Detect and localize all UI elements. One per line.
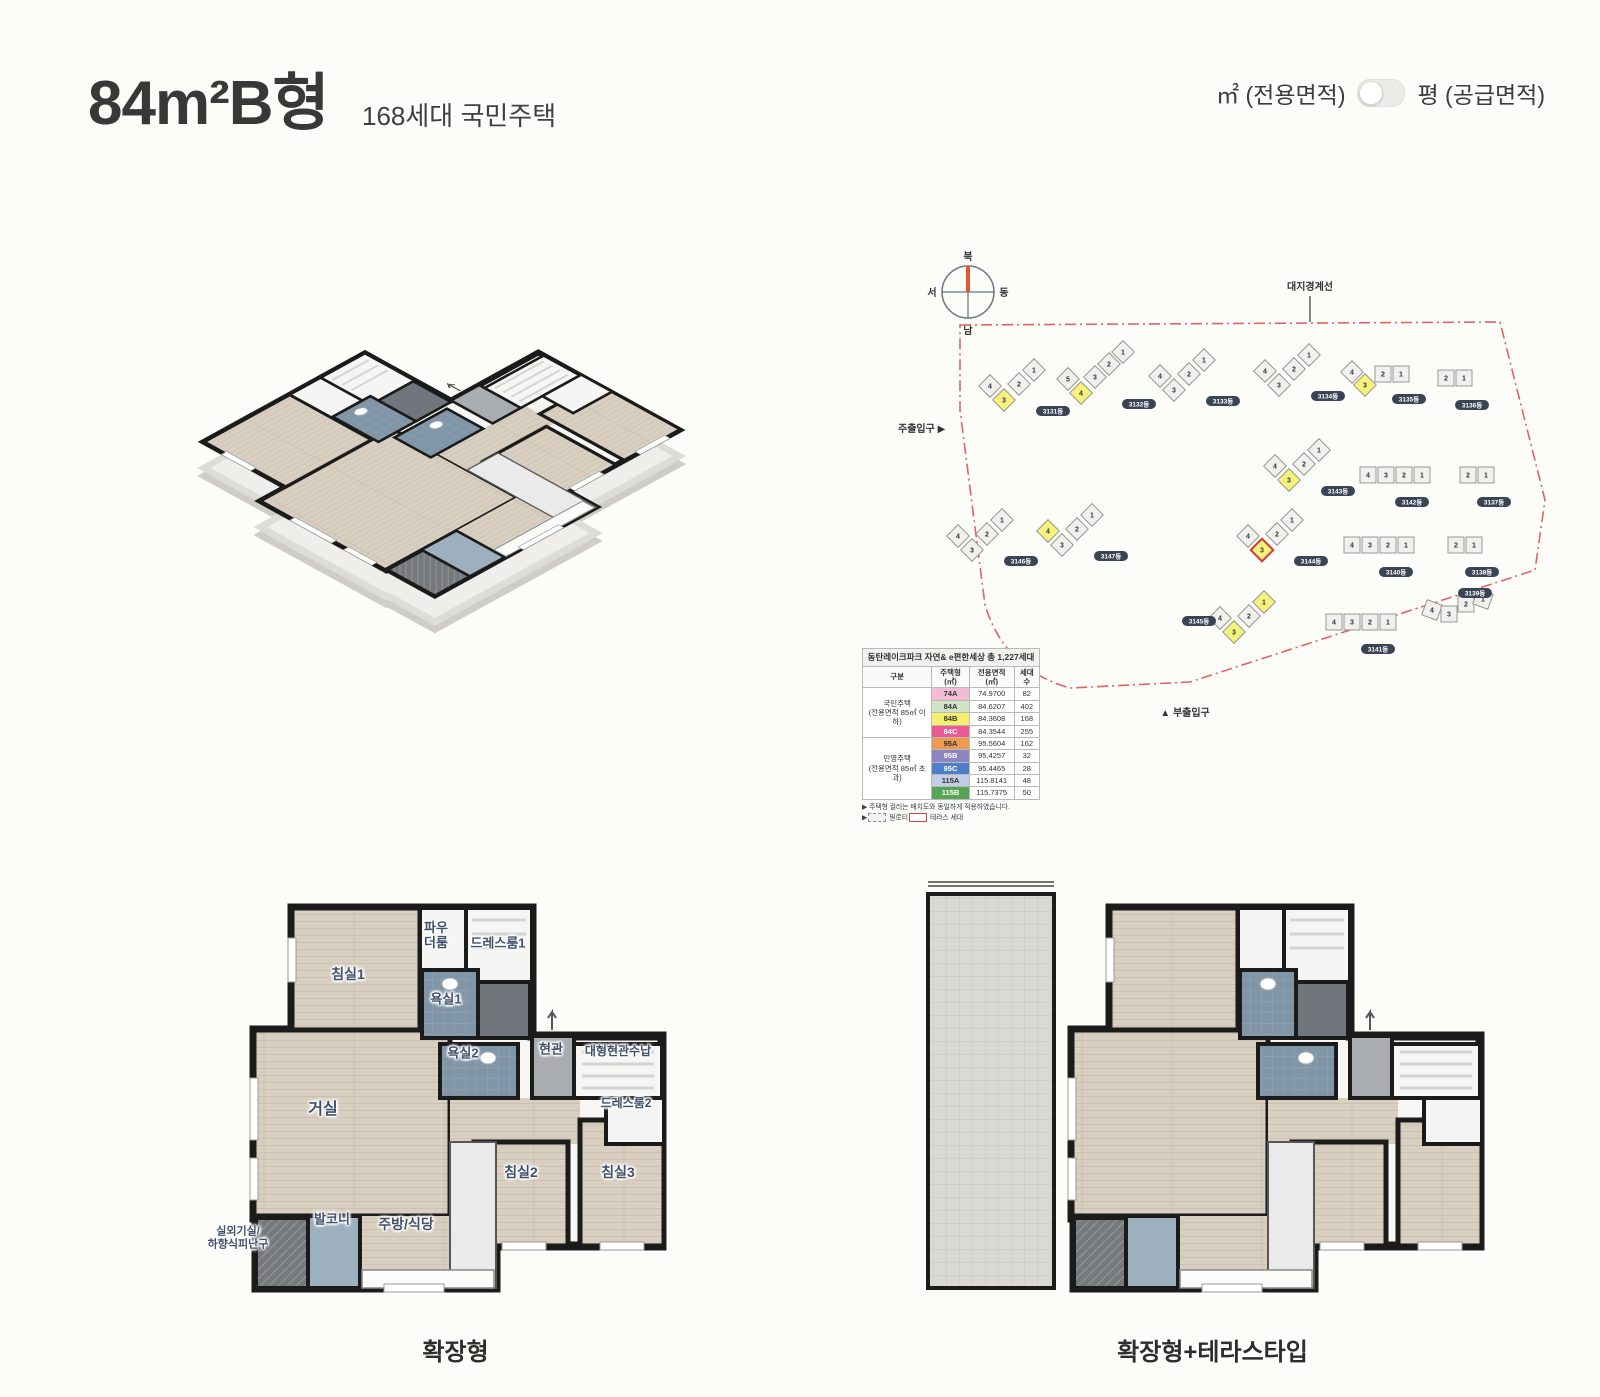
building-3135동: 43213135동: [1341, 361, 1426, 404]
building-unit-number: 2: [1444, 376, 1448, 383]
building-unit-number: 3: [1287, 478, 1291, 485]
building-3136동: 213136동: [1438, 370, 1489, 410]
legend-group-cell: 국민주택(전용면적 85㎡ 이하): [863, 688, 932, 738]
building-unit-number: 2: [1107, 362, 1111, 369]
building-unit-number: 2: [1454, 543, 1458, 550]
floorplan-terrace-caption: 확장형+테라스타입: [920, 1332, 1505, 1367]
building-unit-number: 2: [1187, 372, 1191, 379]
building-unit-number: 4: [956, 534, 960, 541]
building-unit-number: 3: [1277, 383, 1281, 390]
unit-type-legend: 동탄레이크파크 자연& e편한세상 총 1,227세대 구분주택형(㎡)전용면적…: [862, 648, 1040, 823]
building-label: 3136동: [1462, 402, 1482, 410]
building-unit-number: 3: [1368, 543, 1372, 550]
legend-row: 국민주택(전용면적 85㎡ 이하)74A74.970082: [863, 688, 1040, 700]
room-label-dress2: 드레스룸2: [601, 1097, 652, 1111]
building-label: 3142동: [1402, 499, 1422, 507]
building-3146동: 43213146동: [947, 509, 1038, 566]
room-label-entry: 현관: [539, 1043, 563, 1058]
room-label-bedroom2: 침실2: [504, 1164, 538, 1180]
building-unit-number: 3: [1350, 620, 1354, 627]
building-label: 3133동: [1213, 398, 1233, 406]
building-3138동: 213138동: [1448, 537, 1499, 577]
piloti-swatch: [868, 813, 886, 822]
page-title: 84m²B형: [88, 52, 329, 142]
area-unit-toggle-row: ㎡ (전용면적) 평 (공급면적): [1216, 76, 1545, 110]
floorplan-terrace-svg: [920, 872, 1505, 1312]
terrace-swatch: [909, 813, 927, 822]
building-unit-number: 1: [1032, 368, 1036, 375]
legend-area-cell: 95.4465: [969, 762, 1014, 774]
building-unit-number: 3: [1447, 612, 1451, 619]
legend-type-cell: 84C: [932, 725, 970, 737]
building-unit-number: 1: [1290, 518, 1294, 525]
building-unit-number: 3: [970, 548, 974, 555]
building-unit-number: 1: [1399, 372, 1403, 379]
legend-count-cell: 162: [1014, 737, 1039, 749]
legend-area-cell: 84.6207: [969, 700, 1014, 712]
boundary-label: 대지경계선: [1287, 280, 1333, 293]
building-label: 3144동: [1301, 558, 1321, 566]
building-unit-number: 1: [1386, 620, 1390, 627]
legend-count-cell: 28: [1014, 762, 1039, 774]
building-unit-number: 4: [1430, 608, 1434, 615]
room-label-bath2: 욕실2: [447, 1047, 478, 1062]
building-unit-number: 1: [1121, 350, 1125, 357]
isometric-floorplan: [140, 235, 760, 795]
building-3137동: 213137동: [1460, 467, 1511, 507]
room-label-outdoor-unit: 실외기실/하향식피난구: [208, 1225, 269, 1250]
building-unit-number: 4: [1046, 529, 1050, 536]
floorplan-expanded-caption: 확장형: [228, 1332, 683, 1367]
sub-entrance-label: ▲ 부출입구: [1160, 706, 1210, 719]
room-label-balcony: 발코니: [314, 1213, 350, 1228]
toggle-knob-icon: [1359, 81, 1383, 105]
building-unit-number: 4: [1158, 374, 1162, 381]
isometric-floorplan-svg: [140, 235, 760, 795]
legend-title: 동탄레이크파크 자연& e편한세상 총 1,227세대: [863, 649, 1040, 667]
compass-west-label: 서: [927, 286, 936, 299]
building-label: 3147동: [1101, 553, 1121, 561]
building-unit-number: 4: [1350, 543, 1354, 550]
compass-north-label: 북: [963, 251, 972, 263]
legend-header-cell: 주택형(㎡): [932, 666, 970, 688]
legend-header-cell: 구분: [863, 666, 932, 688]
unit-type-table: 동탄레이크파크 자연& e편한세상 총 1,227세대 구분주택형(㎡)전용면적…: [862, 648, 1040, 800]
page-subtitle: 168세대 국민주택: [362, 96, 556, 133]
floorplan-expanded: 침실1 파우더룸 드레스룸1 욕실1 욕실2 현관 대형현관수납 드레스룸2 거…: [228, 872, 683, 1382]
building-unit-number: 3: [1260, 548, 1264, 555]
building-3143동: 43213143동: [1264, 439, 1355, 496]
building-unit-number: 2: [1292, 367, 1296, 374]
building-unit-number: 3: [1232, 630, 1236, 637]
building-unit-number: 1: [1420, 473, 1424, 480]
building-unit-number: 3: [1363, 383, 1367, 390]
legend-count-cell: 48: [1014, 775, 1039, 787]
buildings-layer: 43213131동543213132동43213133동43213134동432…: [947, 341, 1511, 654]
building-unit-number: 1: [1472, 543, 1476, 550]
building-unit-number: 2: [1302, 462, 1306, 469]
building-unit-number: 2: [1275, 532, 1279, 539]
area-unit-toggle[interactable]: [1357, 79, 1405, 107]
legend-group-cell: 민영주택(전용면적 85㎡ 초과): [863, 737, 932, 799]
building-unit-number: 5: [1066, 377, 1070, 384]
building-unit-number: 4: [1263, 369, 1267, 376]
room-label-powder: 파우더룸: [424, 921, 448, 951]
building-3142동: 43213142동: [1360, 467, 1430, 507]
building-unit-number: 4: [1366, 473, 1370, 480]
legend-header-cell: 전용면적(㎡): [969, 666, 1014, 688]
building-unit-number: 4: [1273, 464, 1277, 471]
room-label-kitchen: 주방/식당: [378, 1216, 433, 1232]
room-label-dress1: 드레스룸1: [470, 937, 525, 952]
building-unit-number: 3: [1002, 398, 1006, 405]
building-3134동: 43213134동: [1254, 344, 1345, 401]
building-label: 3141동: [1368, 646, 1388, 654]
building-3131동: 43213131동: [979, 359, 1070, 416]
building-unit-number: 2: [1017, 382, 1021, 389]
legend-count-cell: 32: [1014, 750, 1039, 762]
building-unit-number: 1: [1462, 376, 1466, 383]
building-unit-number: 2: [1402, 473, 1406, 480]
building-unit-number: 3: [1384, 473, 1388, 480]
building-label: 3132동: [1129, 401, 1149, 409]
building-3132동: 543213132동: [1057, 341, 1156, 409]
legend-type-cell: 74A: [932, 688, 970, 700]
room-label-living: 거실: [308, 1101, 337, 1119]
legend-count-cell: 50: [1014, 787, 1039, 799]
legend-header-cell: 세대수: [1014, 666, 1039, 688]
building-unit-number: 3: [1172, 388, 1176, 395]
building-unit-number: 4: [1218, 616, 1222, 623]
terrace-area: [928, 894, 1054, 1288]
legend-type-cell: 84A: [932, 700, 970, 712]
legend-area-cell: 95.5604: [969, 737, 1014, 749]
legend-type-cell: 84B: [932, 713, 970, 725]
building-label: 3139동: [1465, 590, 1485, 598]
legend-area-cell: 115.8141: [969, 775, 1014, 787]
legend-type-cell: 95A: [932, 737, 970, 749]
legend-notes: ▶ 주택형 컬러는 배치도와 동일하게 적용하였습니다. ▶필로티테라스 세대: [862, 803, 1040, 824]
building-unit-number: 1: [1484, 473, 1488, 480]
building-label: 3134동: [1318, 393, 1338, 401]
building-unit-number: 2: [1368, 620, 1372, 627]
legend-count-cell: 168: [1014, 713, 1039, 725]
room-label-entry-storage: 대형현관수납: [585, 1045, 651, 1059]
building-3133동: 43213133동: [1149, 349, 1240, 406]
toggle-right-label: 평 (공급면적): [1417, 76, 1545, 110]
compass-south-label: 남: [963, 324, 973, 337]
building-label: 3140동: [1386, 569, 1406, 577]
building-unit-number: 3: [1060, 543, 1064, 550]
legend-type-cell: 115B: [932, 787, 970, 799]
building-unit-number: 2: [1466, 473, 1470, 480]
main-entrance-label: 주출입구 ▶: [898, 422, 946, 435]
legend-type-cell: 95B: [932, 750, 970, 762]
legend-note-1: ▶ 주택형 컬러는 배치도와 동일하게 적용하였습니다.: [862, 803, 1040, 813]
building-label: 3138동: [1472, 569, 1492, 577]
building-label: 3135동: [1399, 396, 1419, 404]
building-3145동: 43213145동: [1182, 591, 1275, 644]
building-unit-number: 1: [1202, 358, 1206, 365]
building-unit-number: 4: [1332, 620, 1336, 627]
building-label: 3137동: [1484, 499, 1504, 507]
building-unit-number: 1: [1317, 448, 1321, 455]
building-unit-number: 1: [1307, 353, 1311, 360]
building-unit-number: 4: [1350, 370, 1354, 377]
building-unit-number: 4: [1246, 534, 1250, 541]
building-unit-number: 2: [985, 532, 989, 539]
building-unit-number: 3: [1093, 375, 1097, 382]
building-unit-number: 1: [1262, 600, 1266, 607]
toggle-left-label: ㎡ (전용면적): [1216, 76, 1345, 110]
building-unit-number: 2: [1464, 602, 1468, 609]
building-unit-number: 4: [988, 384, 992, 391]
legend-area-cell: 84.3608: [969, 713, 1014, 725]
legend-type-cell: 115A: [932, 775, 970, 787]
legend-note-2: ▶필로티테라스 세대: [862, 813, 1040, 823]
legend-area-cell: 115.7375: [969, 787, 1014, 799]
legend-count-cell: 82: [1014, 688, 1039, 700]
building-unit-number: 2: [1075, 527, 1079, 534]
building-3140동: 43213140동: [1344, 537, 1414, 577]
building-label: 3145동: [1189, 618, 1209, 626]
legend-area-cell: 74.9700: [969, 688, 1014, 700]
building-unit-number: 1: [1000, 518, 1004, 525]
room-label-bedroom3: 침실3: [601, 1164, 635, 1180]
building-unit-number: 2: [1386, 543, 1390, 550]
building-3139동: 43213139동: [1422, 588, 1494, 622]
building-label: 3146동: [1011, 558, 1031, 566]
terrace-edge-lines: [928, 882, 1054, 886]
building-label: 3131동: [1043, 408, 1063, 416]
legend-row: 민영주택(전용면적 85㎡ 초과)95A95.5604162: [863, 737, 1040, 749]
legend-area-cell: 95.4257: [969, 750, 1014, 762]
room-label-bath1: 욕실1: [430, 993, 461, 1008]
legend-count-cell: 255: [1014, 725, 1039, 737]
floorplan-expanded-svg: [228, 872, 683, 1312]
building-label: 3143동: [1328, 488, 1348, 496]
compass-east-label: 동: [999, 287, 1008, 299]
building-3147동: 43213147동: [1037, 504, 1128, 561]
legend-count-cell: 402: [1014, 700, 1039, 712]
building-unit-number: 1: [1090, 513, 1094, 520]
building-unit-number: 1: [1404, 543, 1408, 550]
building-unit-number: 4: [1079, 391, 1083, 398]
legend-area-cell: 84.3544: [969, 725, 1014, 737]
legend-type-cell: 95C: [932, 762, 970, 774]
building-unit-number: 2: [1381, 372, 1385, 379]
floorplan-terrace: 확장형+테라스타입: [920, 872, 1505, 1382]
room-label-bedroom1: 침실1: [331, 966, 365, 982]
building-unit-number: 2: [1247, 614, 1251, 621]
building-3144동: 43213144동: [1237, 509, 1328, 566]
